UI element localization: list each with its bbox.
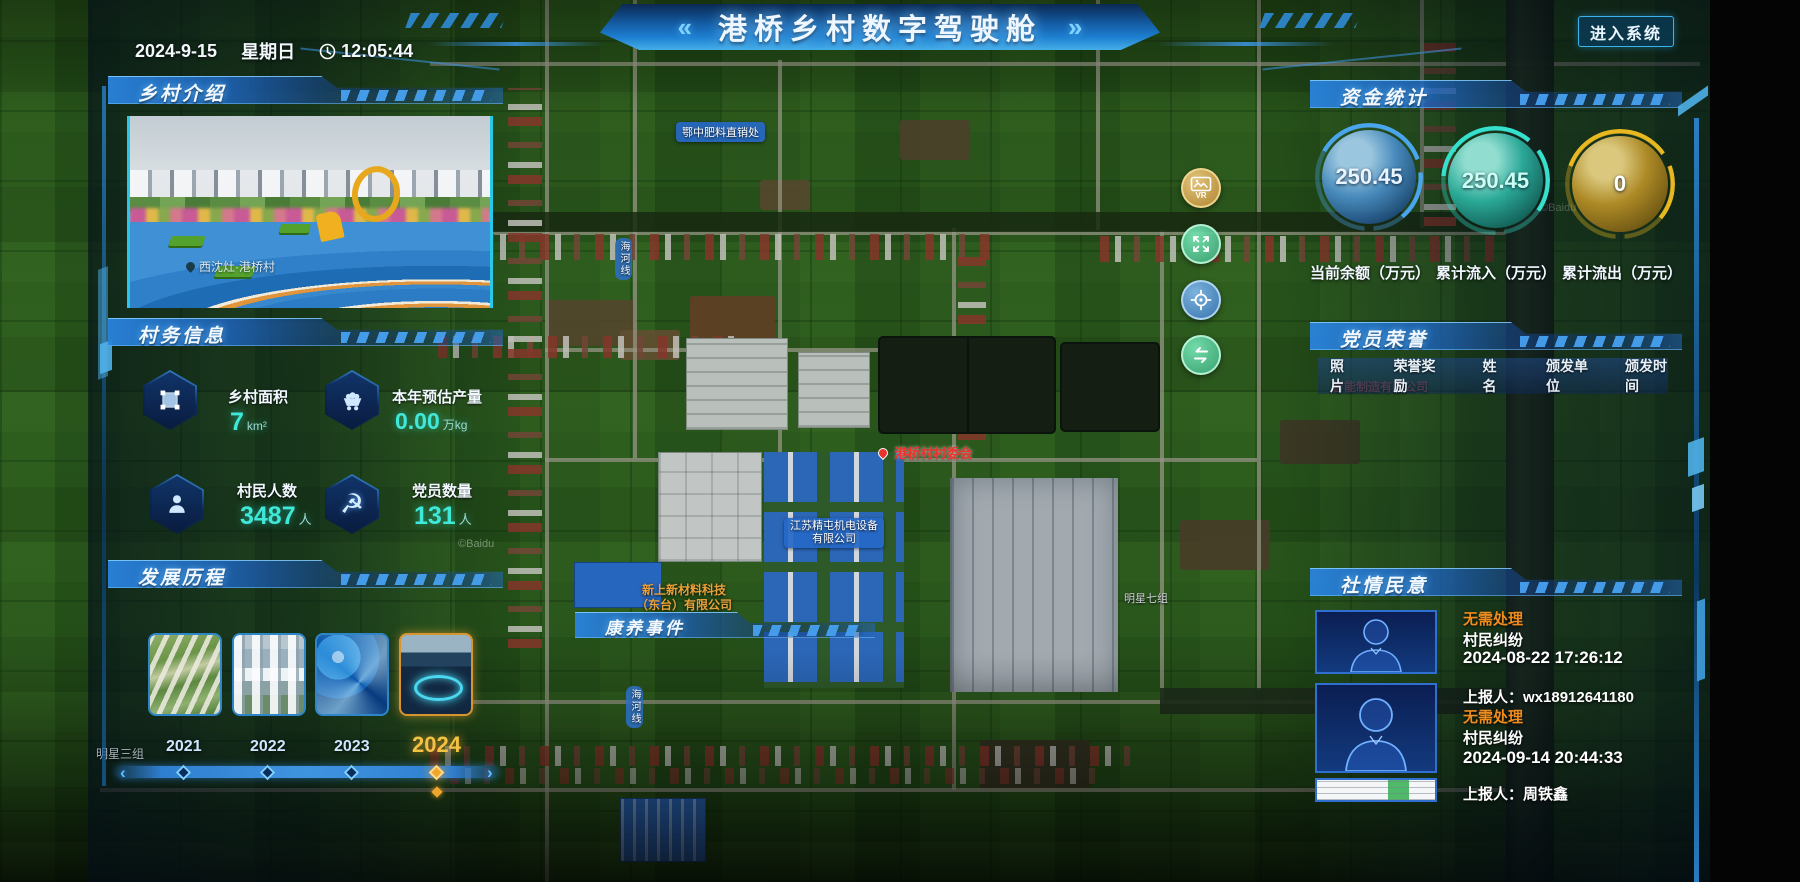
history-thumbnail-2023[interactable] [315,633,389,716]
screen-edge-black [1710,0,1800,882]
photo-bench [279,224,311,233]
stat-label: 村民人数 [237,480,297,501]
sentiment-time: 2024-08-22 17:26:12 [1463,648,1623,668]
right-hud-segment [1688,437,1704,477]
sentiment-reporter: 上报人：周铁鑫 [1463,783,1568,804]
person-wireframe-icon [1341,614,1411,672]
sentiment-entry-photo[interactable] [1315,610,1437,674]
dashboard-root: 鄂中肥料直销处 海河线 海河线 港桥村村委会 江苏精屯机电设备 有限公司 新上新… [0,0,1800,882]
year-tab-2022[interactable]: 2022 [250,738,286,756]
stat-value: 131人 [414,502,472,531]
swap-arrows-icon [1190,344,1212,366]
company-orange-label: 新上新材料科技 （东台）有限公司 [636,583,732,613]
warehouse-rows [764,452,904,688]
field-patch [1280,420,1360,464]
header-stripe-decor [341,332,491,343]
group-label: 明星七组 [1124,590,1168,606]
title-chevron-left: « [678,12,692,43]
fish-pond [1060,342,1160,432]
timeline-prev-arrow[interactable]: ‹ [120,763,126,783]
cart-icon [338,387,366,413]
field-patch [900,120,970,160]
company-name-line1: 江苏精屯机电设备 [790,520,878,532]
sentiment-entry-photo[interactable] [1315,778,1437,802]
gauge-label: 累计流入（万元） [1426,262,1566,283]
crosshair-icon [1190,289,1212,311]
gauge-label: 当前余额（万元） [1300,262,1440,283]
stat-number: 3487 [240,502,296,530]
column-header: 颁发时间 [1625,356,1668,396]
expand-arrows-icon [1190,233,1212,255]
person-icon [164,491,190,517]
map-road [1257,0,1261,690]
year-tab-2021[interactable]: 2021 [166,738,202,756]
history-thumbnail-2021[interactable] [148,633,222,716]
header-wing-left [428,42,603,46]
left-hud-frame [102,86,106,786]
stat-value: 7km² [230,408,267,437]
date-text: 2024-9-15 [135,41,217,62]
area-icon [157,387,183,413]
panel-title: 党员荣誉 [1340,325,1428,352]
locate-button[interactable] [1181,280,1221,320]
committee-marker[interactable]: 港桥村村委会 [878,443,972,462]
sentiment-reporter: 上报人：wx18912641180 [1463,686,1634,707]
timeline-next-arrow[interactable]: › [487,763,493,783]
location-pin-icon [184,260,197,273]
history-thumbnail-2024[interactable] [399,633,473,716]
photo-playground [130,222,490,308]
fish-pond [878,336,1056,434]
history-thumbnail-2022[interactable] [232,633,306,716]
right-hud-segment [1692,484,1704,512]
committee-label: 港桥村村委会 [894,446,972,461]
photo-bench [168,236,205,246]
village-houses [450,768,1110,784]
outflow-gauge: 0 [1572,136,1668,232]
panel-title: 社情民意 [1340,571,1428,598]
village-houses [508,88,542,648]
year-tab-2024[interactable]: 2024 [412,732,461,758]
panel-title: 村务信息 [138,321,226,348]
stat-unit: 万kg [443,418,468,432]
title-chevron-right: » [1068,12,1082,43]
field-patch [760,180,810,210]
year-tab-2023[interactable]: 2023 [334,738,370,756]
village-houses [430,746,1130,766]
stat-unit: 人 [299,512,312,527]
map-watermark: ©Baidu [458,538,494,550]
photo-caption: 西沈灶·港桥村 [186,258,275,275]
factory-shed [798,352,870,428]
header-stripe-decor [341,90,491,101]
stat-number: 7 [230,408,244,436]
main-titlebar: « 港桥乡村数字驾驶舱 » [600,4,1160,50]
sentiment-status: 无需处理 [1463,608,1523,629]
company-name-line2: 有限公司 [812,533,856,545]
map-poi-badge[interactable]: 鄂中肥料直销处 [676,122,765,142]
gauge-value: 0 [1614,171,1626,197]
factory-building [658,452,762,562]
balance-gauge: 250.45 [1322,130,1416,224]
header-stripe-decor [1520,582,1670,593]
road-name-label: 海河线 [615,238,632,280]
panel-title: 发展历程 [138,563,226,590]
stat-unit: km² [247,419,267,433]
company-name-line1: 新上新材料科技 [642,583,726,597]
panel-title: 乡村介绍 [138,79,226,106]
stat-unit: 人 [459,512,472,527]
weekday-text: 星期日 [241,38,295,64]
column-header: 姓名 [1483,356,1505,396]
village-houses [1100,236,1500,262]
company-badge[interactable]: 江苏精屯机电设备 有限公司 [784,518,884,548]
page-title: 港桥乡村数字驾驶舱 [718,6,1042,48]
header-stripe-decor [341,574,491,585]
panel-title: 资金统计 [1340,83,1428,110]
poi-label: 鄂中肥料直销处 [682,127,759,139]
sentiment-type: 村民纠纷 [1463,629,1523,650]
header-stripe-decor [1520,94,1670,105]
red-pin-icon [876,446,890,460]
panel-title: 康养事件 [605,614,685,639]
clock-icon [319,43,336,60]
column-header: 颁发单位 [1546,356,1589,396]
sentiment-entry-photo[interactable] [1315,683,1437,773]
factory-shed [686,338,788,430]
stat-label: 乡村面积 [228,386,288,407]
warehouse-gray [950,478,1118,692]
map-road [100,788,1505,792]
person-wireframe-icon [1334,691,1418,771]
photo-buildings [130,170,490,199]
stat-label: 党员数量 [412,480,472,501]
fullscreen-button[interactable] [1181,224,1221,264]
gauge-label: 累计流出（万元） [1552,262,1692,283]
stat-number: 0.00 [395,408,440,434]
column-header: 照片 [1330,356,1352,396]
header-stripe-decor [753,625,863,636]
header-stripe-decor [1520,336,1670,347]
sentiment-type: 村民纠纷 [1463,727,1523,748]
gauge-value: 250.45 [1462,168,1529,194]
vr-button-label: VR [1195,192,1206,200]
photo-caption-text: 西沈灶·港桥村 [199,258,275,275]
inflow-gauge: 250.45 [1448,133,1543,228]
header-stripes-right [1259,13,1360,28]
stat-number: 131 [414,502,456,530]
time-text: 12:05:44 [341,41,413,62]
stat-value: 3487人 [240,502,312,531]
switch-map-button[interactable] [1181,335,1221,375]
stat-label: 本年预估产量 [392,386,482,407]
company-name-line2: （东台）有限公司 [636,598,732,612]
vr-panorama-button[interactable]: VR [1181,168,1221,208]
header-wing-right [1158,42,1333,46]
blue-roof-building [620,798,706,862]
right-hud-segment [1697,599,1705,682]
gauge-value: 250.45 [1335,164,1402,190]
sentiment-time: 2024-09-14 20:44:33 [1463,748,1623,768]
village-photo[interactable]: 西沈灶·港桥村 [127,116,493,308]
honors-table-header: 照片 荣誉奖励 姓名 颁发单位 颁发时间 [1318,358,1668,394]
enter-system-button[interactable]: 进入系统 [1578,16,1674,47]
datetime-bar: 2024-9-15 星期日 12:05:44 [135,38,413,64]
column-header: 荣誉奖励 [1394,356,1437,396]
panorama-icon [1190,176,1212,192]
header-stripes-left [405,13,506,28]
road-name-label: 海河线 [626,686,643,728]
stat-value: 0.00万kg [395,408,467,435]
hammer-sickle-icon: ☭ [340,489,364,520]
sentiment-status: 无需处理 [1463,706,1523,727]
map-road [1160,230,1164,700]
